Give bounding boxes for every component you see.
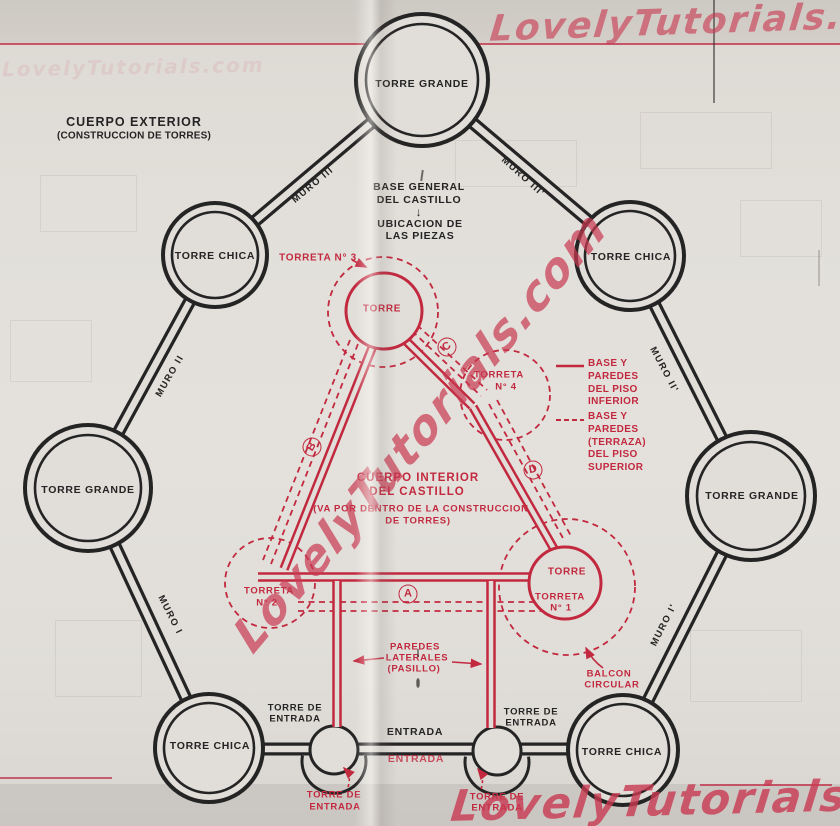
- torre-chica-upper-left-label: TORRE CHICA: [175, 250, 255, 262]
- paredes-laterales-line3: (PASILLO): [387, 664, 440, 675]
- interior-note-line2: DE TORRES): [385, 516, 450, 527]
- torre-top-red-label: TORRE: [363, 304, 401, 315]
- torre-grande-top-label: TORRE GRANDE: [375, 78, 468, 90]
- torre-entrada-red-right-line2: ENTRADA: [471, 803, 522, 814]
- legend-superior-line: (TERRAZA): [588, 437, 646, 450]
- pen-mark: [417, 678, 419, 688]
- scanned-castle-plan-page: CUERPO EXTERIOR (CONSTRUCCION DE TORRES)…: [0, 0, 840, 826]
- torre-entrada-red-left-line1: TORRE DE: [307, 790, 362, 801]
- exterior-title: CUERPO EXTERIOR: [66, 115, 202, 129]
- torre-entrada-black-left-line1: TORRE DE: [268, 703, 323, 714]
- circled-letter-a: A: [399, 585, 418, 604]
- torreta-1-line1: TORRETA: [535, 592, 585, 603]
- torreta-4-line1: TORRETA: [474, 370, 524, 381]
- down-arrow-glyph: ↓: [416, 205, 423, 219]
- legend-superior-line: DEL PISO: [588, 449, 646, 462]
- entrada-red-label: ENTRADA: [388, 753, 444, 765]
- legend-superior-line: BASE Y: [588, 411, 646, 424]
- legend-inferior-line: INFERIOR: [588, 396, 639, 409]
- legend-inferior-line: BASE Y: [588, 358, 639, 371]
- interior-title-line1: CUERPO INTERIOR: [357, 472, 479, 484]
- torreta-1-torre-label: TORRE: [548, 567, 586, 578]
- torre-chica-upper-right-label: TORRE CHICA: [591, 251, 671, 263]
- balcon-circular-line2: CIRCULAR: [584, 680, 639, 691]
- torreta-1-line2: N° 1: [550, 603, 571, 614]
- entrada-black-label: ENTRADA: [387, 726, 443, 738]
- center-note-line3: UBICACION DE: [377, 218, 462, 230]
- torre-entrada-black-left-line2: ENTRADA: [269, 714, 320, 725]
- center-note-line1: BASE GENERAL: [373, 181, 465, 193]
- torre-entrada-black-right-line2: ENTRADA: [505, 718, 556, 729]
- torre-grande-left-label: TORRE GRANDE: [41, 484, 134, 496]
- torre-grande-right-label: TORRE GRANDE: [705, 490, 798, 502]
- torreta-2-line2: N° 2: [256, 598, 277, 609]
- legend-piso-superior: BASE Y PAREDES (TERRAZA) DEL PISO SUPERI…: [588, 411, 646, 475]
- torreta-3-label: TORRETA N° 3: [279, 253, 357, 264]
- legend-superior-line: SUPERIOR: [588, 462, 646, 475]
- interior-note-line1: (VA POR DENTRO DE LA CONSTRUCCION: [313, 504, 528, 515]
- torre-entrada-red-left-line2: ENTRADA: [309, 802, 360, 813]
- torre-chica-bottom-right-label: TORRE CHICA: [582, 746, 662, 758]
- center-note-line4: LAS PIEZAS: [386, 230, 455, 242]
- paredes-laterales-line1: PAREDES: [390, 642, 440, 653]
- exterior-subtitle: (CONSTRUCCION DE TORRES): [57, 131, 211, 142]
- legend-piso-inferior: BASE Y PAREDES DEL PISO INFERIOR: [588, 358, 639, 409]
- interior-title-line2: DEL CASTILLO: [369, 486, 464, 498]
- legend-inferior-line: PAREDES: [588, 371, 639, 384]
- legend-inferior-line: DEL PISO: [588, 384, 639, 397]
- legend-superior-line: PAREDES: [588, 424, 646, 437]
- legend-line-samples: [556, 366, 584, 420]
- balcon-circular-line1: BALCON: [587, 669, 632, 680]
- torre-chica-bottom-left-label: TORRE CHICA: [170, 740, 250, 752]
- torreta-4-line2: N° 4: [495, 382, 516, 393]
- torreta-2-line1: TORRETA: [244, 586, 294, 597]
- torre-entrada-red-right-line1: TORRE DE: [470, 792, 525, 803]
- pen-mark: [417, 649, 419, 657]
- torre-entrada-black-right-line1: TORRE DE: [504, 707, 559, 718]
